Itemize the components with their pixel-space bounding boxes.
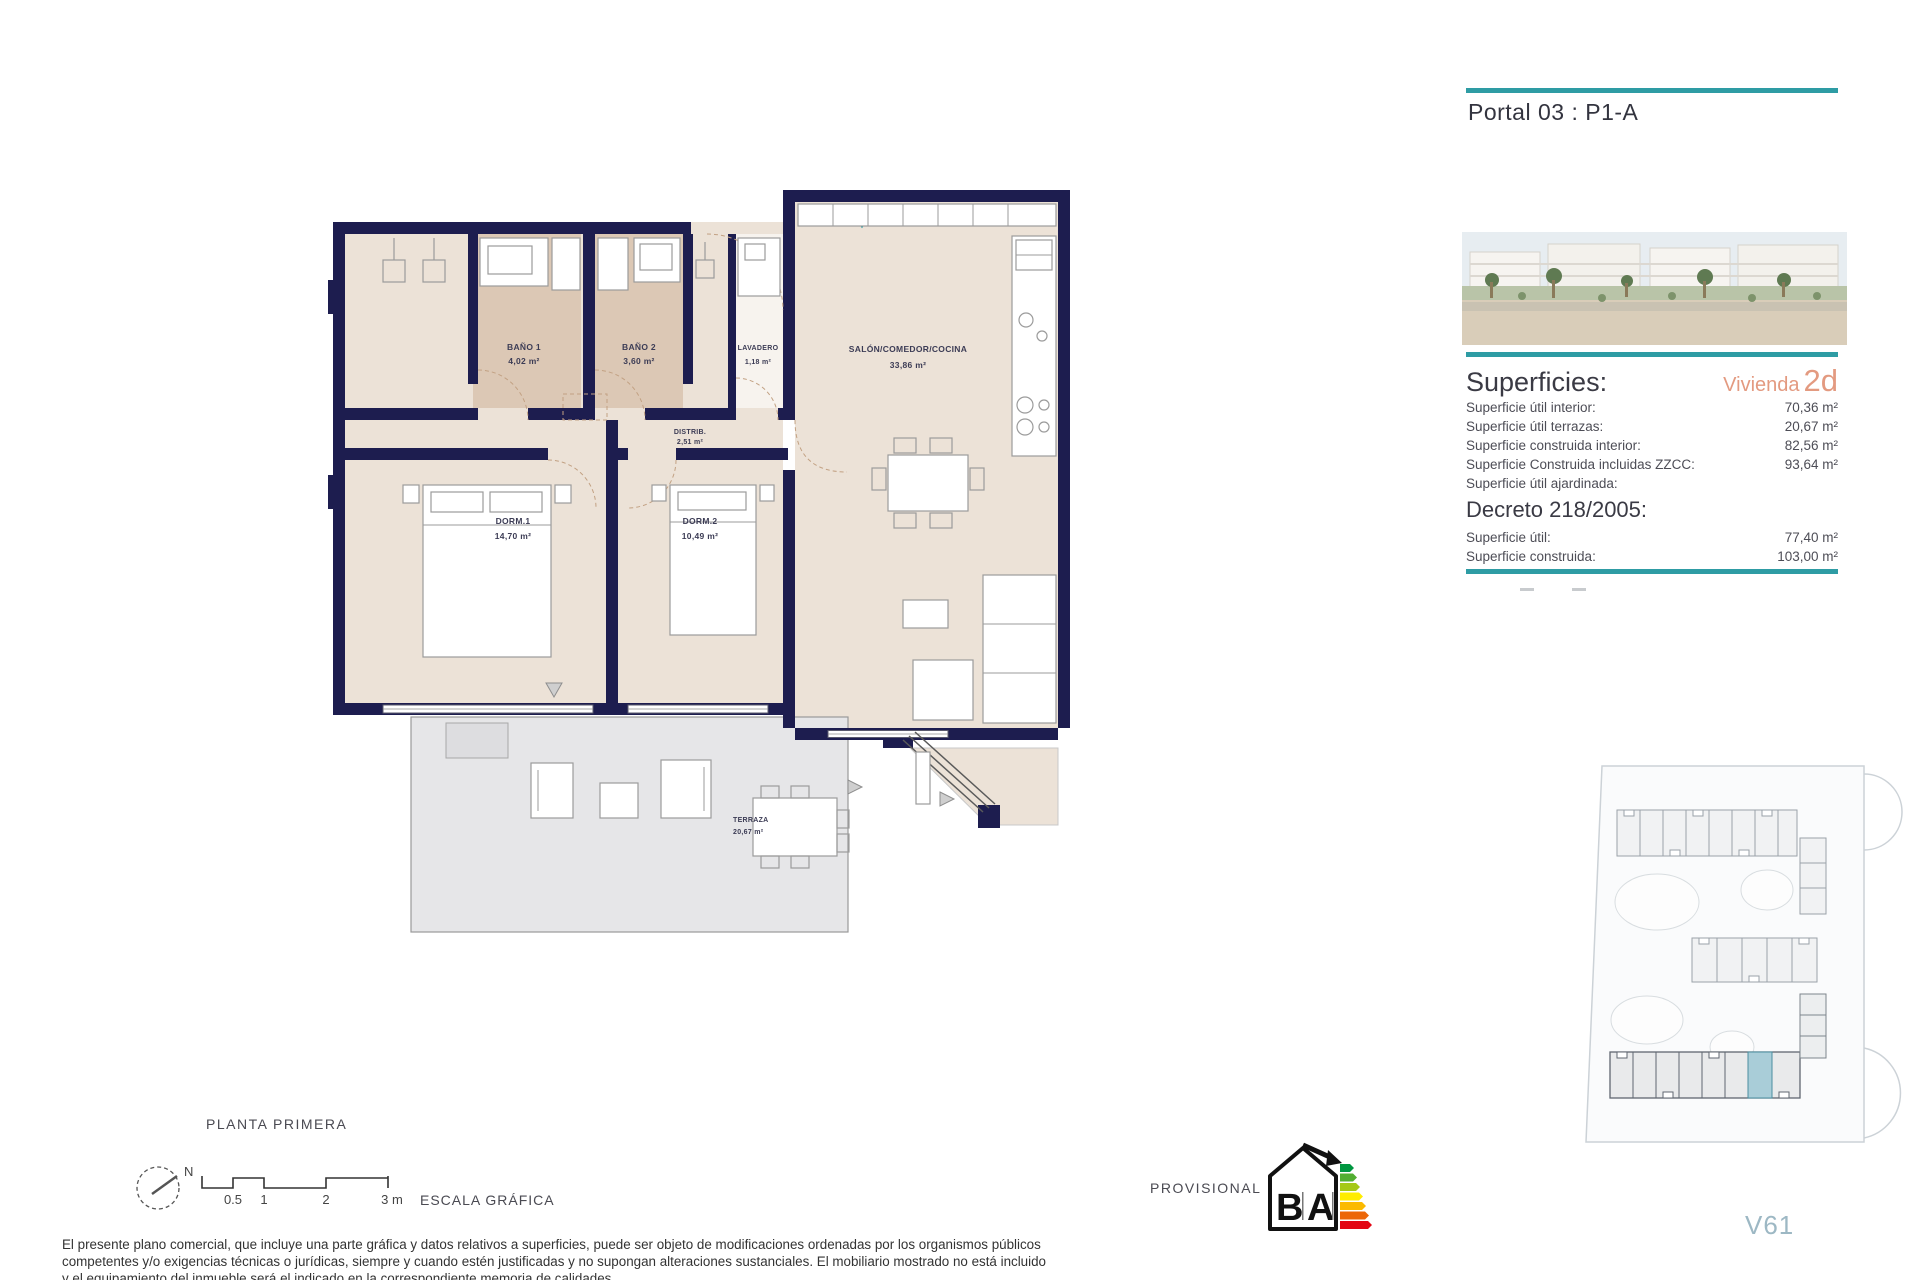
energy-letter-b: B bbox=[1276, 1187, 1303, 1229]
surface-row: Superficie útil interior:70,36 m² bbox=[1466, 398, 1838, 417]
disclaimer: El presente plano comercial, que incluye… bbox=[62, 1236, 1392, 1280]
surface-row: Superficie útil terrazas:20,67 m² bbox=[1466, 417, 1838, 436]
room-area-bano1: 4,02 m² bbox=[508, 356, 539, 366]
compass-north-label: N bbox=[184, 1164, 193, 1179]
surface-row: Superficie construida interior:82,56 m² bbox=[1466, 436, 1838, 455]
room-label-salon: SALÓN/COMEDOR/COCINA bbox=[849, 343, 967, 354]
scale-tick: 0.5 bbox=[224, 1192, 242, 1207]
vivienda-label: Vivienda2d bbox=[1723, 363, 1838, 399]
scale-tick: 1 bbox=[260, 1192, 267, 1207]
terrace-vent-marker-icon bbox=[848, 780, 862, 794]
neighbor-vent-marker-icon bbox=[940, 792, 954, 806]
room-area-dorm1: 14,70 m² bbox=[495, 531, 531, 541]
room-label-bano2: BAÑO 2 bbox=[622, 342, 656, 352]
unit-code: V61 bbox=[1745, 1210, 1794, 1241]
room-area-bano2: 3,60 m² bbox=[623, 356, 654, 366]
room-area-distrib: 2,51 m² bbox=[677, 439, 704, 446]
room-area-salon: 33,86 m² bbox=[890, 360, 926, 370]
building-render bbox=[1462, 232, 1847, 350]
room-label-dorm2: DORM.2 bbox=[683, 516, 718, 526]
scale-tick: 2 bbox=[322, 1192, 329, 1207]
floor-name: PLANTA PRIMERA bbox=[206, 1116, 347, 1132]
decreto-title: Decreto 218/2005: bbox=[1466, 497, 1647, 523]
room-area-lavadero: 1,18 m² bbox=[745, 359, 772, 366]
building-row-middle bbox=[1692, 938, 1817, 982]
decreto-row: Superficie útil:77,40 m² bbox=[1466, 528, 1838, 547]
surface-row: Superficie útil ajardinada: bbox=[1466, 474, 1838, 493]
room-label-dorm1: DORM.1 bbox=[496, 516, 531, 526]
room-label-lavadero: LAVADERO bbox=[738, 345, 779, 352]
superficies-title: Superficies: bbox=[1466, 367, 1607, 398]
scale-caption: ESCALA GRÁFICA bbox=[420, 1192, 555, 1208]
cropped-text-mark bbox=[1572, 588, 1586, 591]
energy-letter-a: A bbox=[1307, 1187, 1334, 1229]
room-label-terraza: TERRAZA bbox=[733, 817, 769, 824]
energy-certificate-icon: B A bbox=[1262, 1136, 1374, 1239]
scale-tick: 3 m bbox=[381, 1192, 403, 1207]
decreto-row: Superficie construida:103,00 m² bbox=[1466, 547, 1838, 566]
room-label-distrib: DISTRIB. bbox=[674, 429, 706, 436]
cropped-text-mark bbox=[1520, 588, 1534, 591]
plan-sheet: BAÑO 1 4,02 m² BAÑO 2 3,60 m² LAVADERO 1… bbox=[0, 0, 1920, 1280]
header-rule bbox=[1466, 88, 1838, 93]
room-label-bano1: BAÑO 1 bbox=[507, 342, 541, 352]
scale-bar-line-icon bbox=[202, 1176, 388, 1188]
provisional-label: PROVISIONAL bbox=[1150, 1180, 1261, 1196]
room-area-terraza: 20,67 m² bbox=[733, 829, 764, 836]
highlighted-unit bbox=[1748, 1052, 1772, 1098]
compass: N bbox=[132, 1158, 202, 1221]
surface-row: Superficie Construida incluidas ZZCC:93,… bbox=[1466, 455, 1838, 474]
decreto-rule bbox=[1466, 569, 1838, 574]
floor-plan: BAÑO 1 4,02 m² BAÑO 2 3,60 m² LAVADERO 1… bbox=[328, 180, 1078, 945]
page-title: Portal 03 : P1-A bbox=[1468, 99, 1638, 126]
vivienda-type: 2d bbox=[1804, 363, 1838, 398]
energy-bars-icon bbox=[1340, 1164, 1372, 1229]
compass-circle-icon bbox=[137, 1167, 179, 1209]
site-plan bbox=[1562, 752, 1912, 1162]
superficies-rule bbox=[1466, 352, 1838, 357]
room-area-dorm2: 10,49 m² bbox=[682, 531, 718, 541]
terrace bbox=[411, 717, 862, 932]
